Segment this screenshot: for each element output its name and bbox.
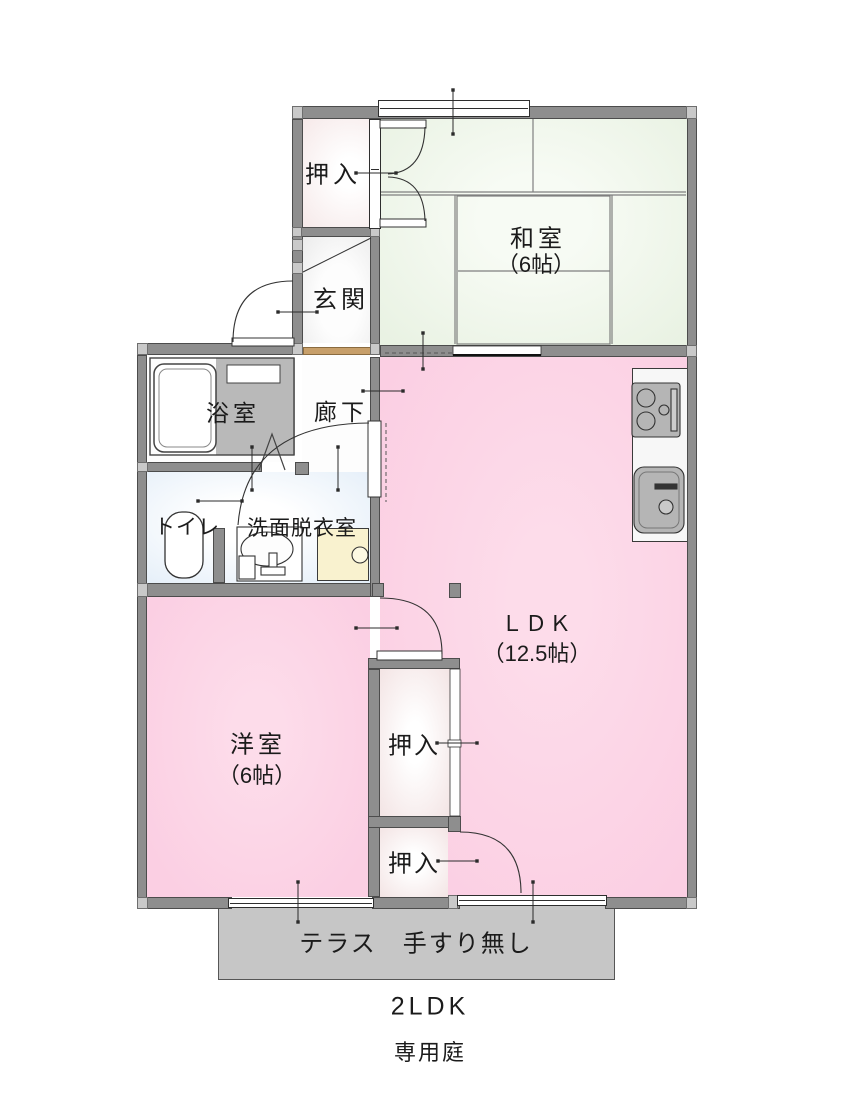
bathroom-label: 浴室 xyxy=(206,394,260,428)
toilet-label: トイレ xyxy=(154,511,220,541)
wall xyxy=(448,816,461,832)
entrance-step xyxy=(303,347,371,355)
wall-junction xyxy=(292,239,303,251)
wall xyxy=(449,583,461,598)
wall xyxy=(295,462,309,475)
floor-plan: 押入 玄関 和室 （6帖） 浴室 廊下 トイレ 洗面脱衣室 ＬＤＫ （12.5帖… xyxy=(0,0,854,1110)
wall xyxy=(370,230,380,355)
wall-junction xyxy=(137,583,148,597)
oshiire-btm-label: 押入 xyxy=(388,844,440,879)
oshiire-top-opening xyxy=(369,119,381,229)
wall xyxy=(292,119,303,355)
plan-type-caption: 2LDK xyxy=(391,993,470,1022)
wall xyxy=(372,583,384,597)
wall-junction xyxy=(137,897,148,909)
wall xyxy=(137,343,303,355)
kitchen-counter xyxy=(632,368,687,542)
washitsu-size: （6帖） xyxy=(497,247,575,279)
wall xyxy=(687,106,697,909)
wall xyxy=(137,897,232,909)
wall xyxy=(137,583,380,597)
ldk-size: （12.5帖） xyxy=(483,636,592,668)
western-room-size: （6帖） xyxy=(218,758,296,790)
wall-junction xyxy=(137,343,148,355)
wall-junction xyxy=(292,227,302,237)
wall xyxy=(372,897,460,909)
ldk-label: ＬＤＫ xyxy=(501,606,573,638)
washroom-label: 洗面脱衣室 xyxy=(247,512,357,542)
wall xyxy=(137,355,147,909)
private-garden-caption: 専用庭 xyxy=(394,1035,466,1067)
window-top xyxy=(378,100,530,117)
wall xyxy=(380,345,687,357)
wall xyxy=(368,658,460,669)
wall xyxy=(605,897,697,909)
window-western-room xyxy=(228,898,374,908)
oshiire-top-label: 押入 xyxy=(305,155,361,190)
hallway-label: 廊下 xyxy=(314,393,368,427)
wall xyxy=(137,462,262,472)
wall-junction xyxy=(686,345,697,357)
wall-junction xyxy=(292,106,303,119)
wall xyxy=(368,816,460,828)
wall-junction xyxy=(292,343,303,355)
wall xyxy=(368,669,380,897)
entrance-door-arc xyxy=(233,281,293,342)
terrace-sliding-door xyxy=(457,895,607,906)
wall-junction xyxy=(686,106,697,119)
wall-junction xyxy=(137,462,148,472)
western-room-label: 洋室 xyxy=(230,725,286,760)
wall-junction xyxy=(292,262,303,274)
genkan-label: 玄関 xyxy=(313,280,369,315)
oshiire-mid-label: 押入 xyxy=(388,726,440,761)
wall-junction xyxy=(686,897,697,909)
wall xyxy=(370,357,380,597)
terrace-label: テラス 手すり無し xyxy=(299,924,533,959)
wall xyxy=(292,227,380,237)
wall-junction xyxy=(370,343,380,355)
